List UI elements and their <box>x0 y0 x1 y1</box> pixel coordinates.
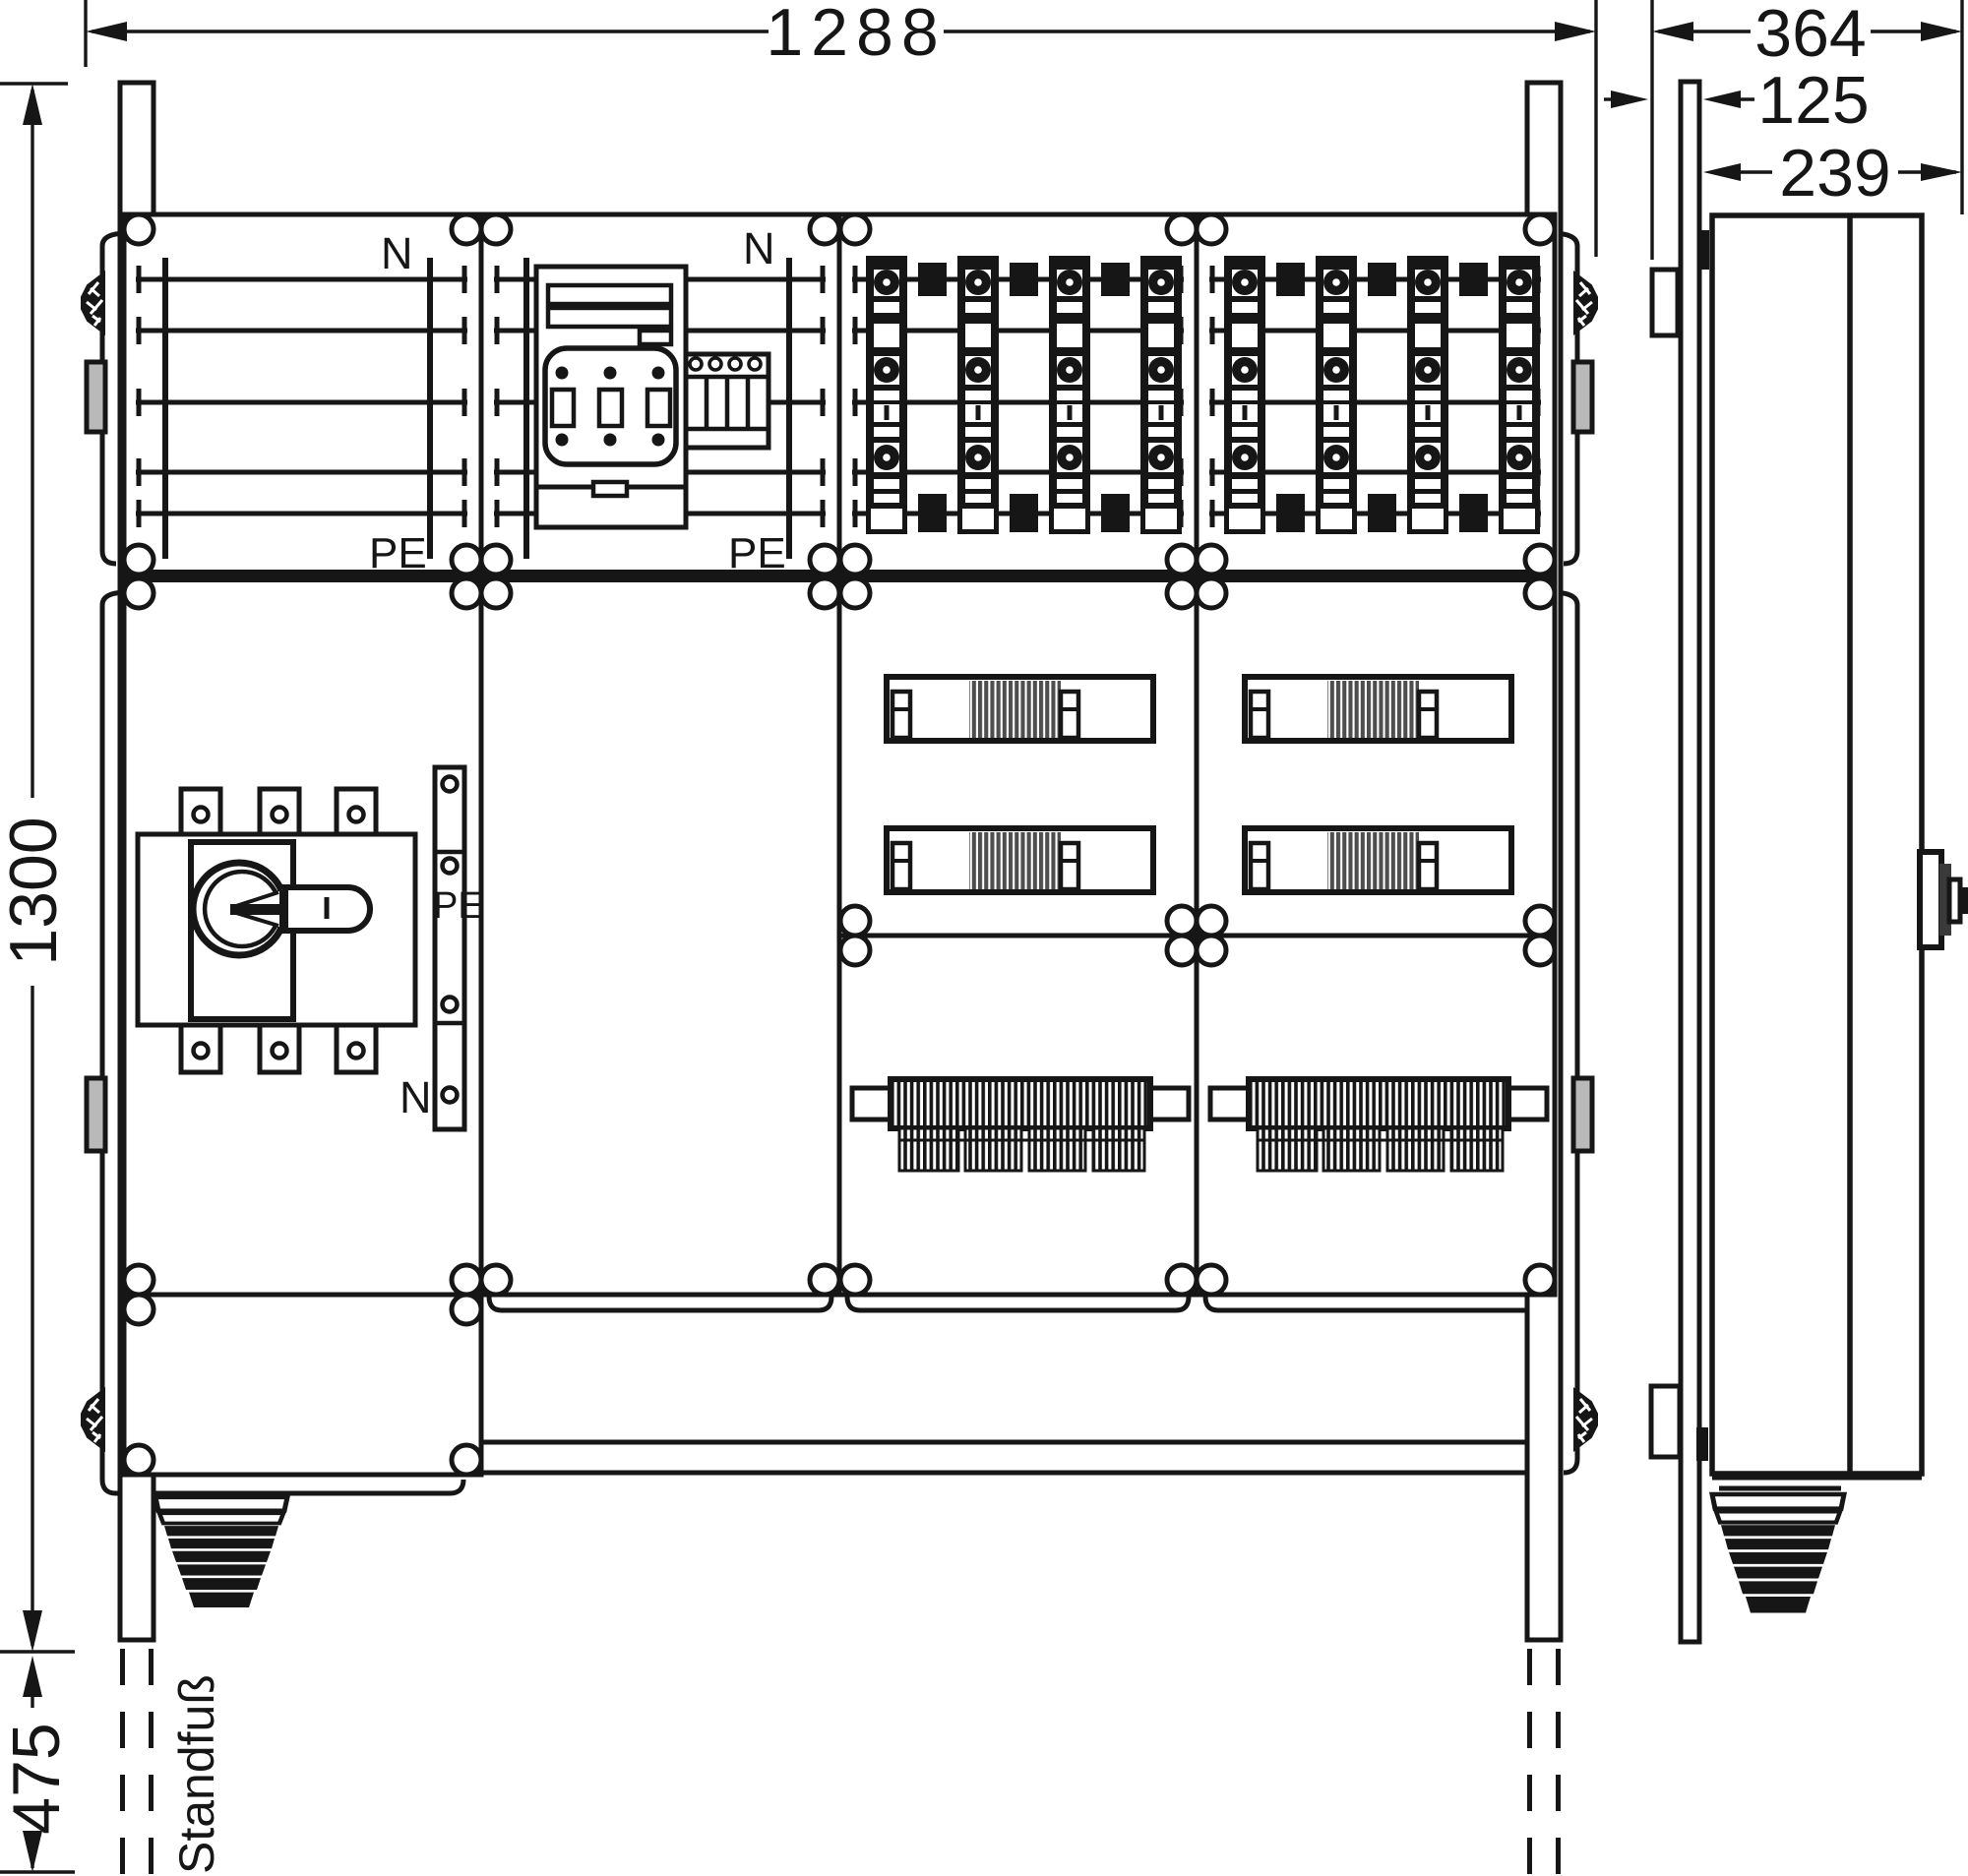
svg-text:PE: PE <box>369 529 427 577</box>
svg-text:1300: 1300 <box>0 817 71 965</box>
svg-text:N: N <box>400 1072 432 1122</box>
svg-text:PE: PE <box>433 885 483 927</box>
svg-text:N: N <box>743 223 775 273</box>
svg-text:1288: 1288 <box>766 0 946 70</box>
svg-text:N: N <box>381 228 413 278</box>
svg-text:125: 125 <box>1757 63 1869 138</box>
svg-text:PE: PE <box>728 529 786 577</box>
svg-text:475: 475 <box>0 1723 74 1834</box>
svg-text:364: 364 <box>1754 0 1866 71</box>
svg-text:Standfuß: Standfuß <box>169 1674 224 1874</box>
svg-text:239: 239 <box>1779 136 1890 211</box>
